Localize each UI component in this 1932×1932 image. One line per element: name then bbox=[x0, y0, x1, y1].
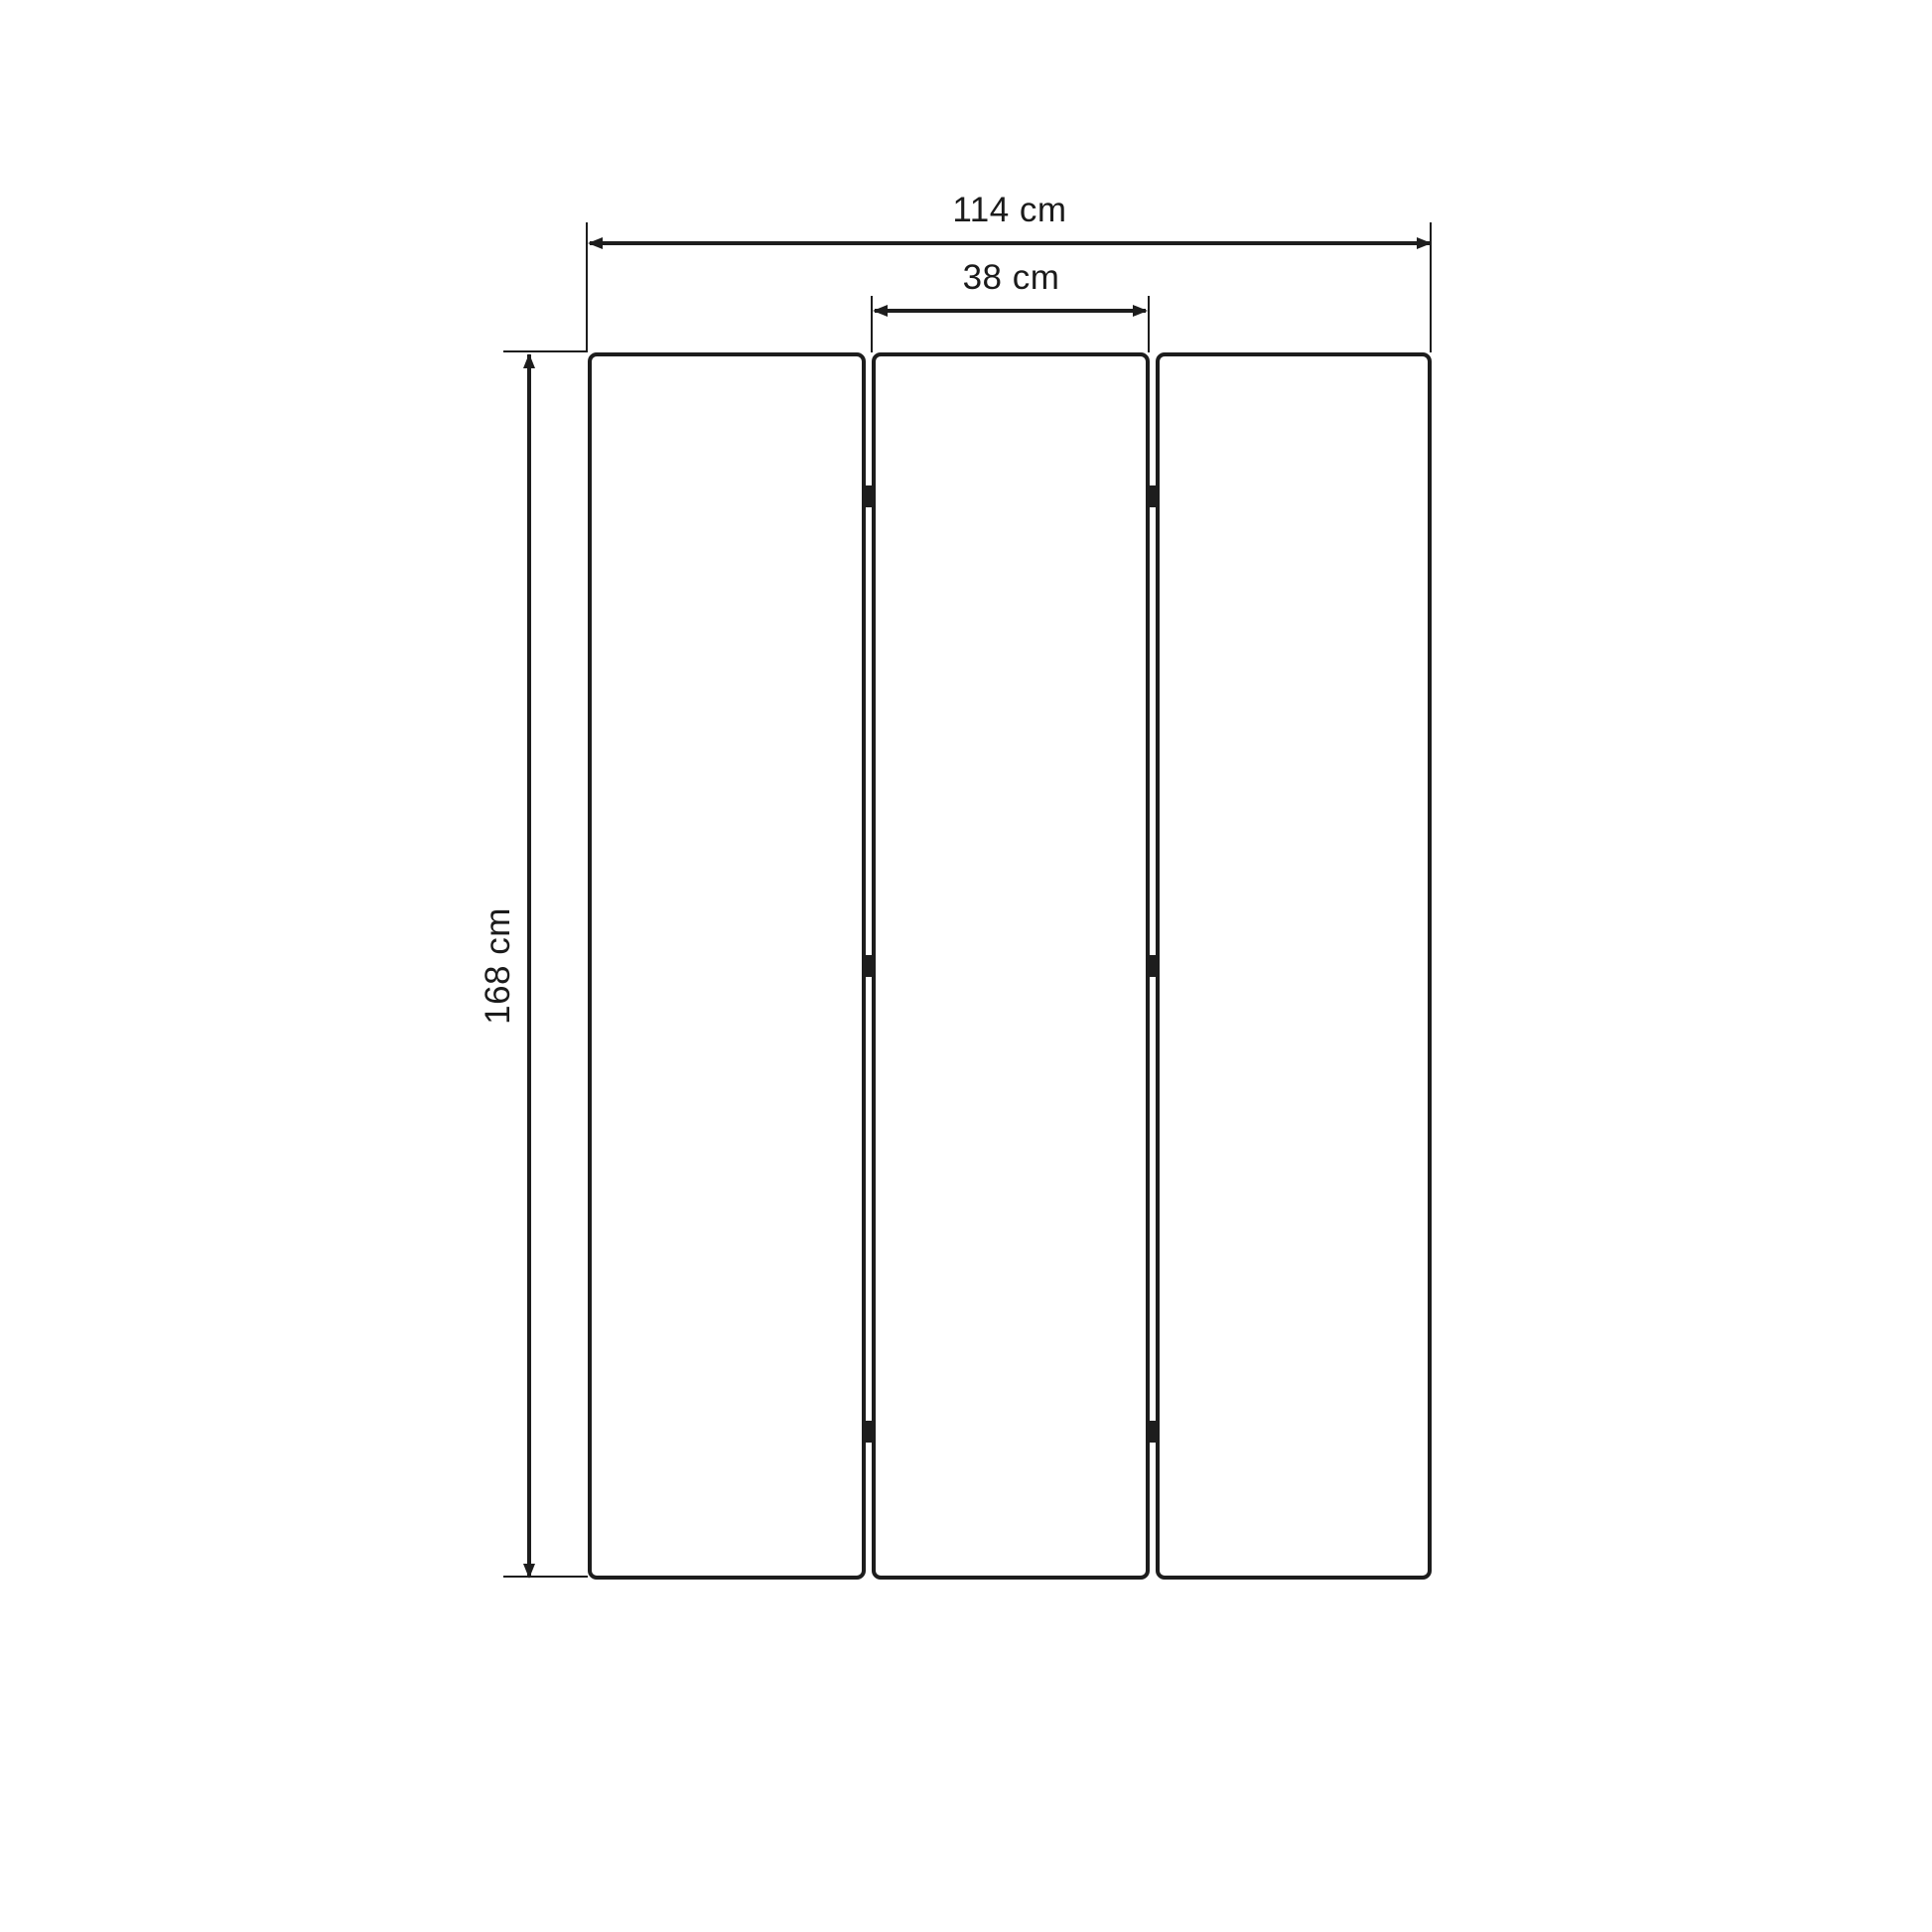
hinge-right-middle bbox=[1147, 955, 1159, 977]
panel-width-arrow-left-icon bbox=[873, 305, 888, 317]
panel-width-dimension-label: 38 cm bbox=[873, 258, 1150, 298]
total-width-arrow-right-icon bbox=[1417, 237, 1432, 249]
total-width-dimension-line bbox=[590, 241, 1430, 245]
hinge-right-bottom bbox=[1147, 1421, 1159, 1443]
dimension-drawing: 168 cm 114 cm 38 cm bbox=[0, 0, 1932, 1932]
screen-panel-right bbox=[1156, 352, 1432, 1580]
total-width-dimension-label: 114 cm bbox=[588, 191, 1432, 230]
panel-width-arrow-right-icon bbox=[1133, 305, 1148, 317]
height-arrow-up-icon bbox=[523, 353, 535, 368]
hinge-left-top bbox=[863, 485, 875, 507]
hinge-left-bottom bbox=[863, 1421, 875, 1443]
panel-width-dimension-line bbox=[875, 309, 1146, 313]
height-arrow-down-icon bbox=[523, 1564, 535, 1579]
height-extension-line-bottom bbox=[503, 1576, 588, 1578]
height-dimension-label: 168 cm bbox=[479, 907, 518, 1025]
height-extension-line-top bbox=[503, 350, 588, 352]
screen-panel-left bbox=[588, 352, 866, 1580]
screen-panel-center bbox=[872, 352, 1150, 1580]
total-width-arrow-left-icon bbox=[588, 237, 603, 249]
hinge-left-middle bbox=[863, 955, 875, 977]
hinge-right-top bbox=[1147, 485, 1159, 507]
panel-width-extension-line-right bbox=[1148, 296, 1150, 352]
height-dimension-line bbox=[527, 354, 531, 1578]
